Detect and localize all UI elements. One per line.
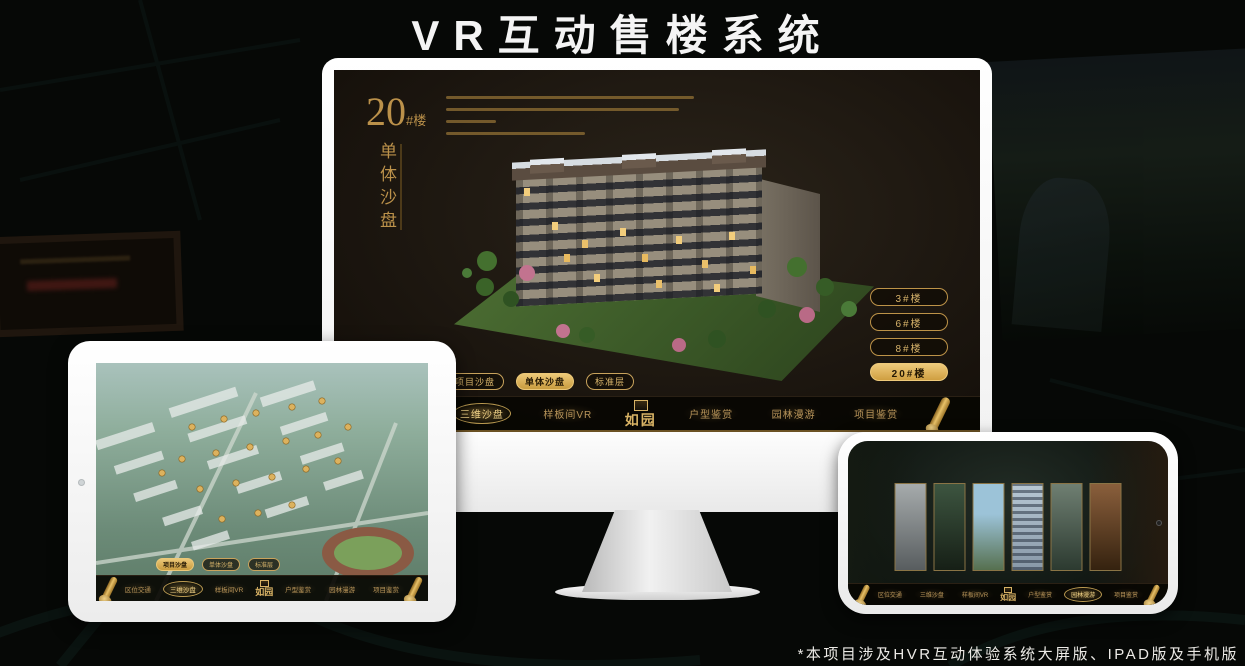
nav-item[interactable]: 项目鉴赏 [367,582,405,596]
brand-logo[interactable]: 如园 [625,400,657,427]
award-plaque-decoration [0,231,184,338]
floor-button[interactable]: 20#楼 [870,363,948,381]
gallery-panel[interactable] [895,483,927,571]
tablet-nav-bar: 区位交通三维沙盘样板间VR 如园 户型鉴赏园林漫游项目鉴赏 [96,575,428,601]
nav-item[interactable]: 区位交通 [872,588,908,601]
title-divider [400,144,402,230]
nav-item[interactable]: 园林漫游 [1064,587,1102,602]
mode-tab[interactable]: 标准层 [248,558,280,571]
nav-item[interactable]: 样板间VR [537,404,598,423]
phone-device: 区位交通三维沙盘样板间VR 如园 户型鉴赏园林漫游项目鉴赏 [838,432,1178,614]
roof-dormer [622,153,656,169]
nav-item[interactable]: 项目鉴赏 [848,404,904,423]
scene-gallery[interactable] [895,483,1122,571]
building-facade [516,166,762,307]
seal-icon [634,400,648,411]
page-title: VR互动售楼系统 [0,2,1245,63]
nav-item[interactable]: 园林漫游 [323,582,361,596]
building-side-wall [756,178,820,312]
tablet-screen: 项目沙盘单体沙盘标准层 区位交通三维沙盘样板间VR 如园 户型鉴赏园林漫游项目鉴… [96,363,428,601]
nav-item[interactable]: 三维沙盘 [453,403,511,424]
brand-logo[interactable]: 如园 [1000,587,1016,602]
nav-item[interactable]: 样板间VR [209,582,250,596]
lit-windows [524,188,530,196]
nav-item[interactable]: 户型鉴赏 [683,404,739,423]
mode-tab[interactable]: 标准层 [586,373,634,390]
mode-tab[interactable]: 单体沙盘 [516,373,574,390]
camera-icon [1156,520,1162,526]
brand-logo-text: 如园 [255,588,273,597]
description-text-lines [446,96,694,144]
nav-item[interactable]: 户型鉴赏 [1022,588,1058,601]
nav-item[interactable]: 园林漫游 [766,404,822,423]
phone-screen: 区位交通三维沙盘样板间VR 如园 户型鉴赏园林漫游项目鉴赏 [848,441,1168,605]
mode-tab[interactable]: 单体沙盘 [202,558,240,571]
tablet-device: 项目沙盘单体沙盘标准层 区位交通三维沙盘样板间VR 如园 户型鉴赏园林漫游项目鉴… [68,341,456,622]
monitor-stand [582,510,732,592]
nav-item[interactable]: 户型鉴赏 [279,582,317,596]
gallery-panel[interactable] [973,483,1005,571]
gallery-panel[interactable] [1012,483,1044,571]
roof-dormer [530,158,564,174]
footnote: *本项目涉及HVR互动体验系统大屏版、IPAD版及手机版 [798,643,1239,664]
mode-tab-group: 项目沙盘单体沙盘标准层 [156,558,280,571]
phone-nav-bar: 区位交通三维沙盘样板间VR 如园 户型鉴赏园林漫游项目鉴赏 [848,583,1168,605]
garden-trees [462,268,472,278]
seal-icon [260,580,269,587]
floor-button[interactable]: 6#楼 [870,313,948,331]
gallery-panel[interactable] [934,483,966,571]
aerial-photo-decoration [988,48,1245,341]
scroll-icon[interactable] [855,583,870,605]
brand-logo-text: 如园 [1000,594,1016,602]
scroll-icon[interactable] [406,575,424,601]
floor-button[interactable]: 8#楼 [870,338,948,356]
block-number-suffix: #楼 [406,113,426,128]
scroll-icon[interactable] [927,395,951,431]
mode-tab-group: 项目沙盘单体沙盘标准层 [446,373,634,390]
mode-tab[interactable]: 项目沙盘 [156,558,194,571]
nav-item[interactable]: 样板间VR [956,588,994,601]
roof-dormer [712,148,746,164]
floor-button[interactable]: 3#楼 [870,288,948,306]
camera-icon [78,479,85,486]
building-3d-model[interactable] [454,148,874,383]
floor-button-group: 3#楼6#楼8#楼20#楼 [870,288,948,381]
scroll-icon[interactable] [1145,583,1160,605]
block-title: 20#楼 [366,92,426,132]
gallery-panel[interactable] [1051,483,1083,571]
promo-canvas: VR互动售楼系统 20#楼 单体沙盘 [0,0,1245,666]
scroll-icon[interactable] [101,575,119,601]
block-subtitle-vertical: 单体沙盘 [374,142,399,234]
nav-item[interactable]: 项目鉴赏 [1108,588,1144,601]
nav-item[interactable]: 区位交通 [119,582,157,596]
brand-logo-text: 如园 [625,413,657,427]
nav-item[interactable]: 三维沙盘 [163,581,203,597]
nav-item[interactable]: 三维沙盘 [914,588,950,601]
brand-logo[interactable]: 如园 [255,580,273,597]
block-number: 20 [366,89,406,134]
gallery-panel[interactable] [1090,483,1122,571]
